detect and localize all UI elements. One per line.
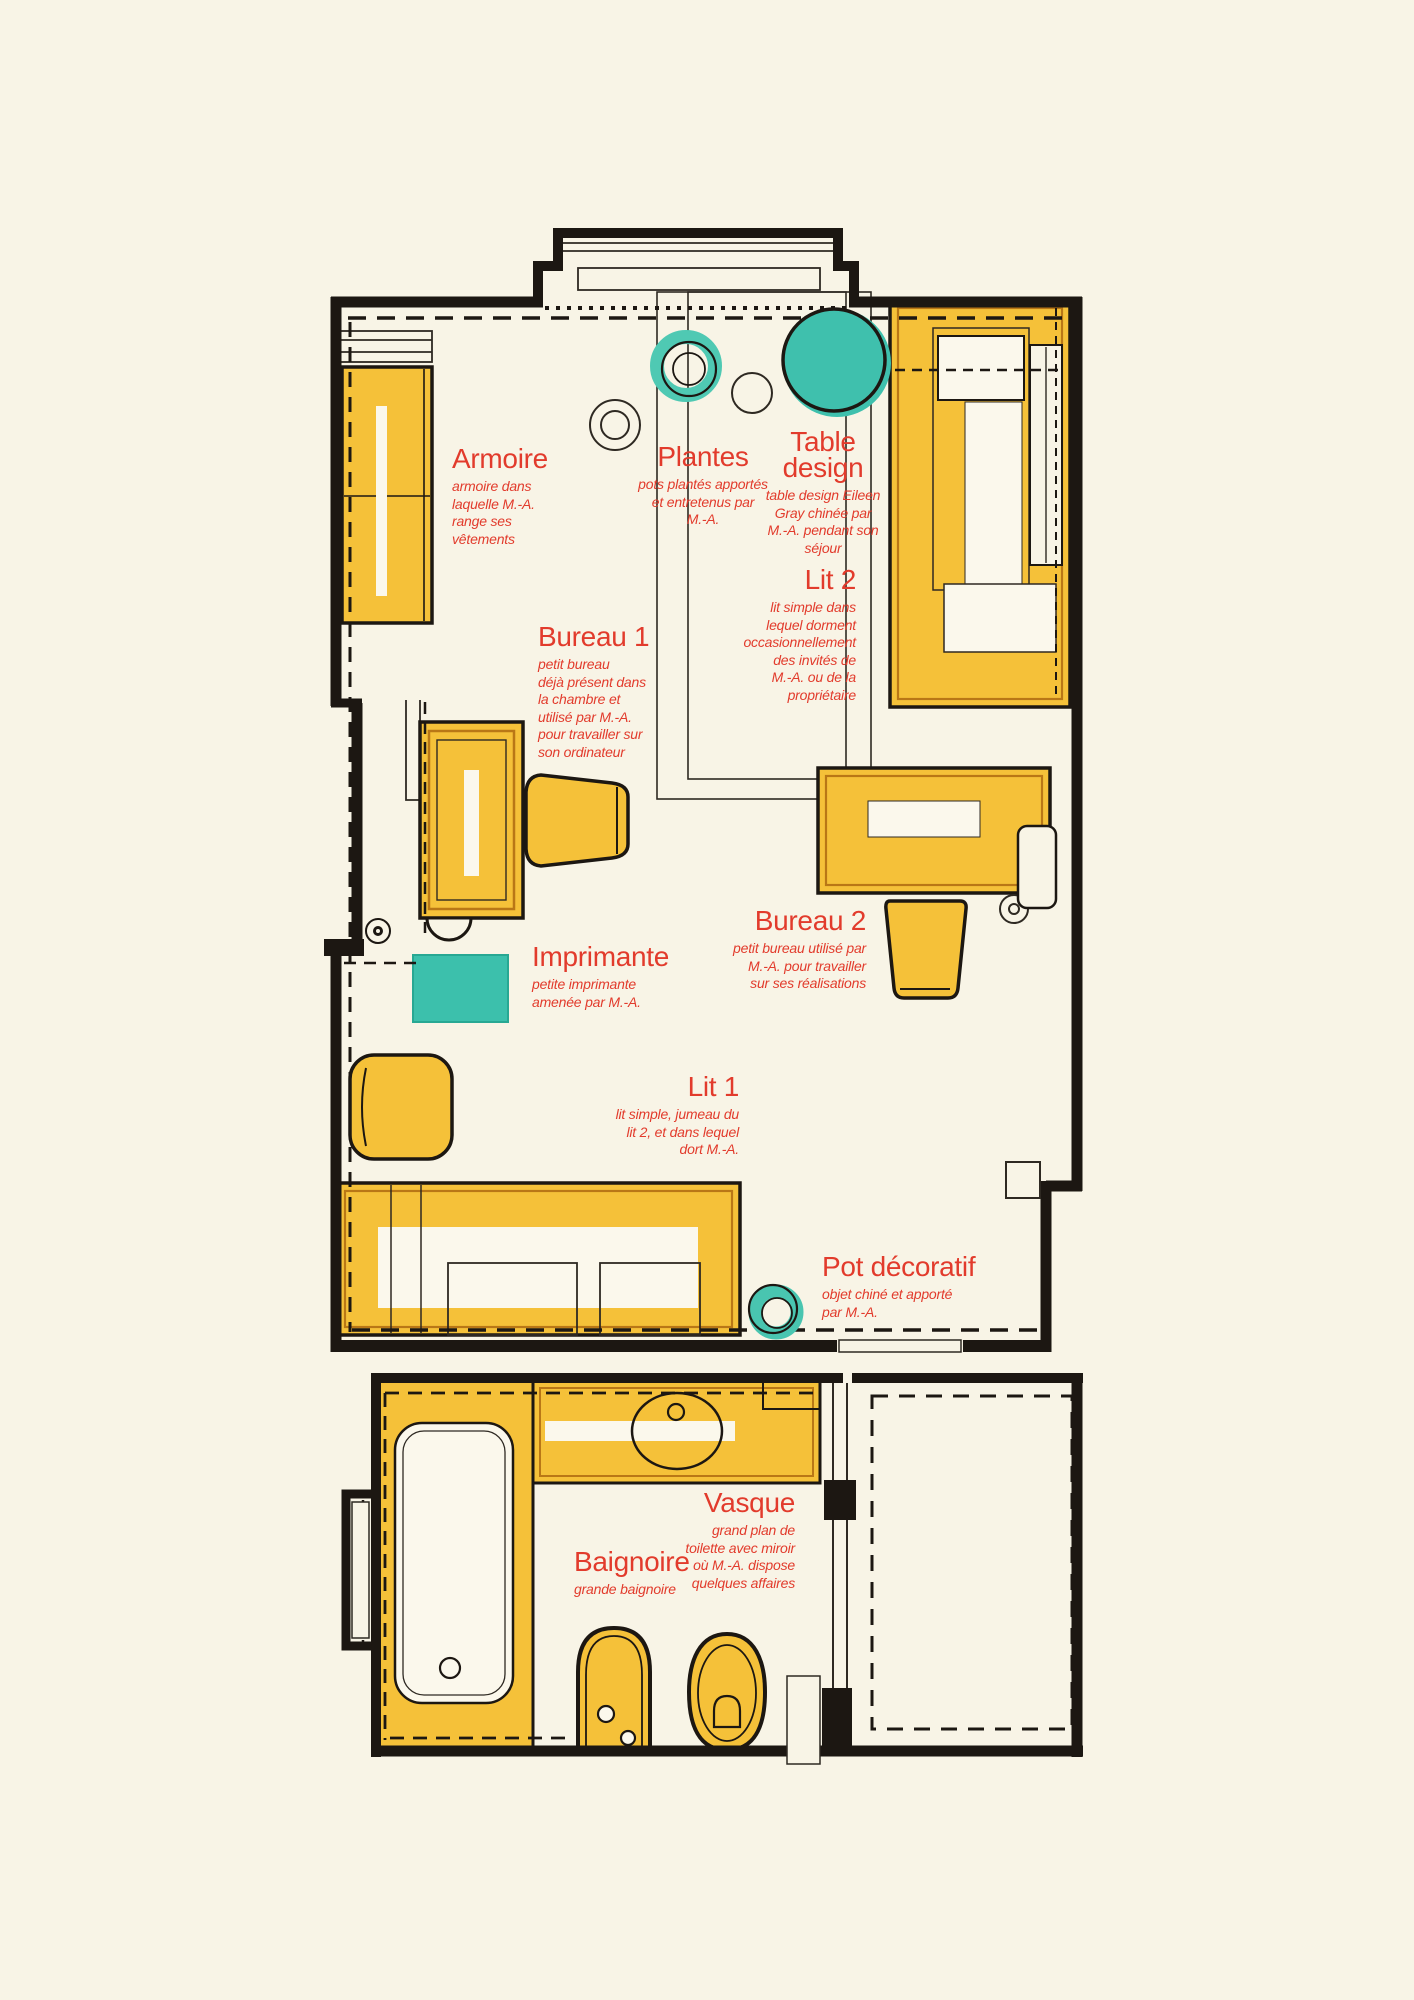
mirror-strip — [545, 1421, 735, 1441]
pot-decoratif-desc: objet chiné et apporté par M.-A. — [822, 1286, 1062, 1321]
bay-window-detail — [563, 243, 833, 290]
double-circle — [590, 400, 640, 450]
label-lit-1: Lit 1 lit simple, jumeau du lit 2, et da… — [539, 1074, 739, 1159]
toilet — [578, 1628, 650, 1752]
right-room — [852, 1373, 1083, 1757]
vasque-counter — [533, 1381, 820, 1483]
chair-bureau-2 — [886, 901, 966, 998]
decorative-pot-ring — [749, 1285, 797, 1333]
label-baignoire: Baignoire grande baignoire — [574, 1549, 814, 1599]
right-room-dashed-outline — [872, 1396, 1072, 1729]
armoire — [342, 367, 432, 623]
door-jamb-block-upper — [824, 1480, 856, 1520]
stool — [350, 1055, 452, 1159]
chair-bureau-1 — [526, 775, 628, 866]
bureau-1-title: Bureau 1 — [538, 624, 748, 650]
bureau-2-title: Bureau 2 — [666, 908, 866, 934]
table-design-title: Table design — [723, 429, 923, 481]
baignoire-desc: grande baignoire — [574, 1581, 814, 1599]
bottom-door-channel — [839, 1340, 961, 1352]
label-table-design: Table design table design Eileen Gray ch… — [723, 429, 923, 557]
right-wall-jog-box — [1006, 1162, 1040, 1198]
lit-2-title: Lit 2 — [656, 567, 856, 593]
bathroom-door-channel — [787, 1676, 820, 1764]
lit-1-title: Lit 1 — [539, 1074, 739, 1100]
vasque-title: Vasque — [595, 1490, 795, 1516]
niche-inner — [352, 1502, 369, 1638]
baignoire-title: Baignoire — [574, 1549, 814, 1575]
bed-lit-1 — [337, 1183, 740, 1335]
label-pot-decoratif: Pot décoratif objet chiné et apporté par… — [822, 1254, 1062, 1321]
door-jamb-block-lower — [822, 1688, 852, 1750]
lit-1-desc: lit simple, jumeau du lit 2, et dans leq… — [539, 1106, 739, 1159]
side-table — [1018, 826, 1056, 908]
bureau-1-desc: petit bureau déjà présent dans la chambr… — [538, 656, 748, 761]
printer — [413, 955, 508, 1022]
plant-pot-ring — [657, 337, 716, 396]
desk-bureau-2 — [818, 768, 1050, 893]
table-design-desc: table design Eileen Gray chinée par M.-A… — [723, 487, 923, 557]
desk-1-half-circle — [427, 918, 471, 940]
bathtub-area — [379, 1381, 533, 1747]
bureau-2-desc: petit bureau utilisé par M.-A. pour trav… — [666, 940, 866, 993]
design-table-circle — [783, 309, 891, 417]
label-bureau-1: Bureau 1 petit bureau déjà présent dans … — [538, 624, 748, 761]
bathtub — [395, 1423, 513, 1703]
door-hinge-circle-left — [366, 919, 390, 943]
floor-plan-page: Armoire armoire dans laquelle M.-A. rang… — [0, 0, 1414, 2000]
pot-decoratif-title: Pot décoratif — [822, 1254, 1062, 1280]
left-window-sill — [340, 331, 432, 362]
desk-bureau-1 — [420, 722, 523, 918]
small-circle — [732, 373, 772, 413]
bidet — [689, 1634, 765, 1750]
label-bureau-2: Bureau 2 petit bureau utilisé par M.-A. … — [666, 908, 866, 993]
